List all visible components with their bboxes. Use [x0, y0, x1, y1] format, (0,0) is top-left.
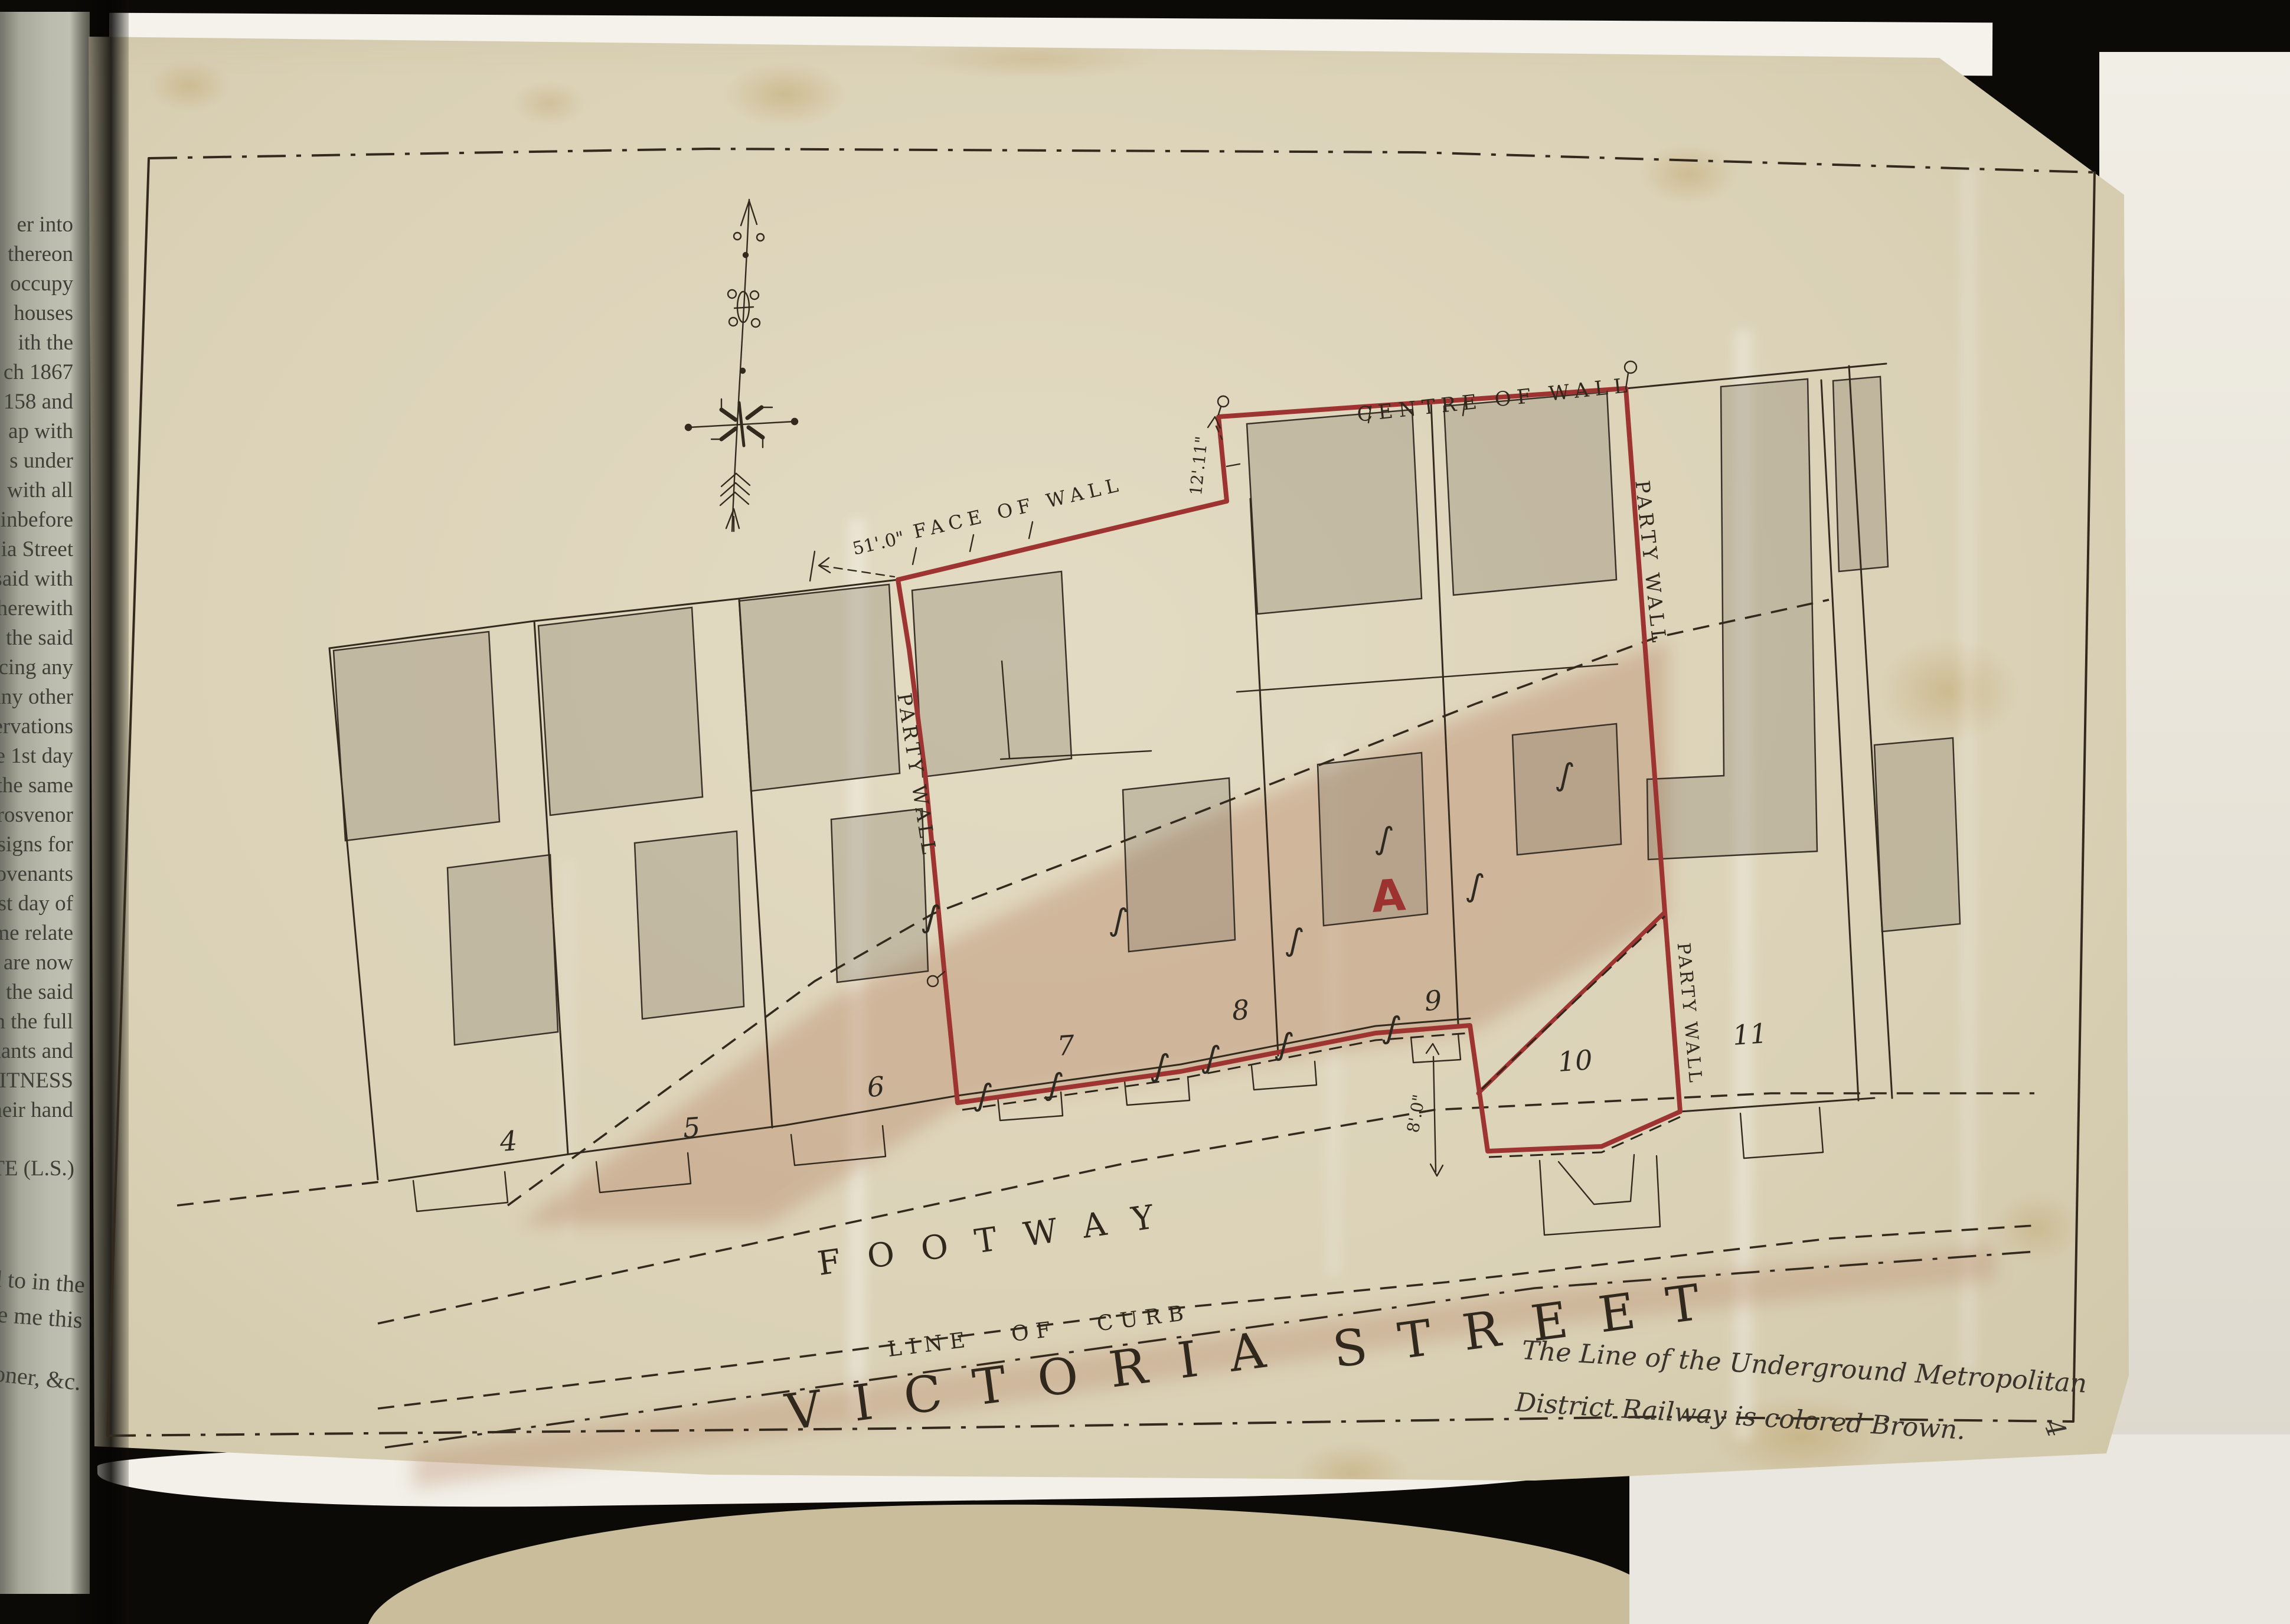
- scanned-book-photo: er intothereonoccupyhousesith thech 1867…: [0, 0, 2290, 1624]
- corner-pen-mark: 4: [2037, 1414, 2072, 1442]
- plot-number-6: 6: [866, 1070, 886, 1103]
- compass-rose: [685, 200, 798, 531]
- plot-number-11: 11: [1732, 1017, 1768, 1051]
- plot-number-7: 7: [1056, 1029, 1076, 1062]
- plot-number-9: 9: [1423, 984, 1443, 1017]
- notch-dimension: 12'.11": [1186, 435, 1211, 496]
- footway-label: FOOTWAY: [815, 1194, 1183, 1283]
- plot-number-4: 4: [498, 1125, 518, 1158]
- plot-number-8: 8: [1231, 994, 1250, 1027]
- footway-dimension: 8'.0": [1403, 1093, 1429, 1134]
- building-footprints: [334, 377, 1960, 1045]
- plot-number-10: 10: [1557, 1044, 1593, 1078]
- railway-note-line1: The Line of the Underground Metropolitan: [1521, 1335, 2088, 1399]
- railway-note-line2: District Railway is colored Brown.: [1514, 1387, 1966, 1446]
- parcel-a-label: A: [1370, 870, 1407, 923]
- face-of-wall-dimension: 51'.0": [851, 528, 906, 560]
- plan-drawing: ∫ ∫ ∫ ∫ ∫ ∫ ∫ ∫ ∫ ∫ ∫ ∫ CENTRE OF WALL 5…: [0, 0, 2290, 1624]
- plot-number-5: 5: [682, 1111, 701, 1144]
